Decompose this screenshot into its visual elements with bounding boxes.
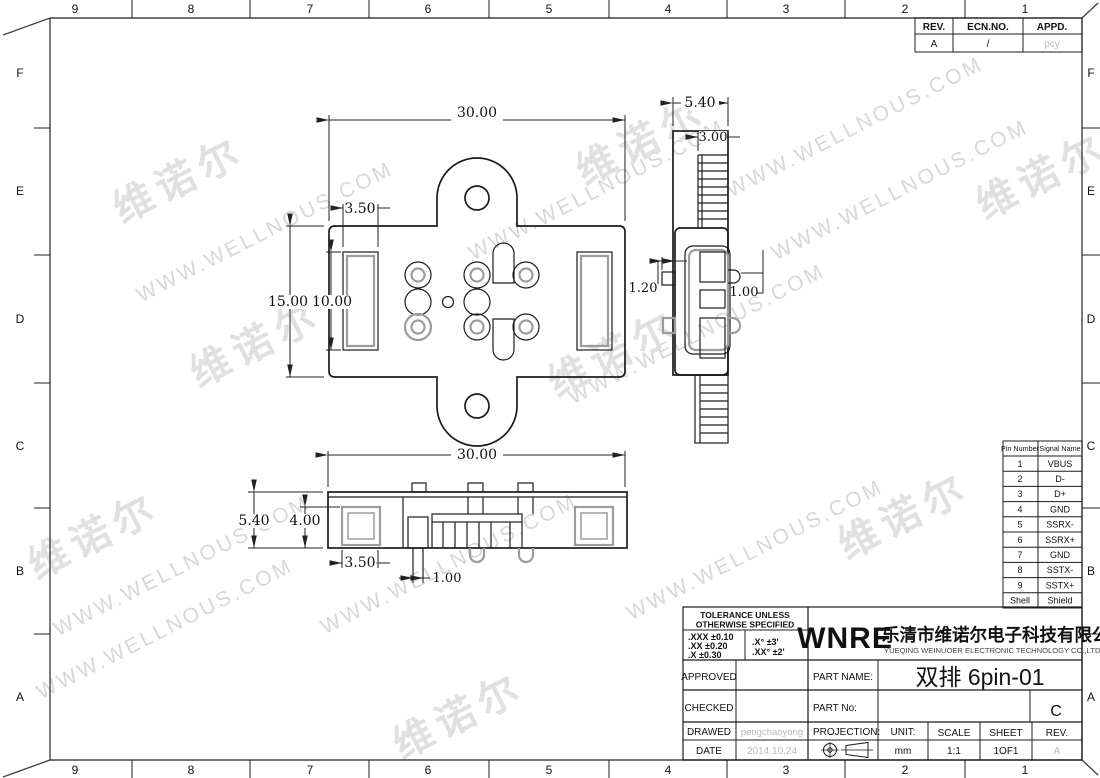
zone-row: F [16, 66, 23, 80]
zone-row: C [16, 439, 25, 453]
tolerance-title-1: TOLERANCE UNLESS [700, 610, 790, 620]
zone-col: 1 [1022, 763, 1029, 777]
zone-row: E [1087, 184, 1095, 198]
dim-front-width: 30.00 [457, 105, 497, 121]
zone-col: 9 [72, 2, 79, 16]
size-value: C [1050, 703, 1062, 720]
signal-name: SSRX- [1046, 520, 1074, 530]
sheet-label: SHEET [989, 728, 1022, 739]
unit-label: UNIT: [891, 727, 916, 738]
scale-label: SCALE [938, 728, 971, 739]
rev-header: REV. [923, 22, 946, 33]
rev-value: A [931, 39, 938, 50]
pin-number: 8 [1017, 565, 1022, 575]
zone-col: 3 [783, 2, 790, 16]
company-name-cn: 乐清市维诺尔电子科技有限公司 [882, 625, 1100, 645]
drawed-label: DRAWED [687, 727, 731, 738]
pin-number: 2 [1017, 474, 1022, 484]
zone-col: 6 [425, 2, 432, 16]
zone-col: 7 [307, 2, 314, 16]
zone-row: A [1087, 690, 1095, 704]
watermark-brand: 维诺尔 [386, 665, 532, 768]
unit-value: mm [895, 746, 912, 757]
pin-number: 3 [1017, 489, 1022, 499]
pin-number: 5 [1017, 520, 1022, 530]
zone-col: 9 [72, 763, 79, 777]
dim-bottom-height: 5.40 [238, 513, 269, 529]
pin-number: 4 [1017, 504, 1022, 514]
drawing-sheet: WWW.WELLNOUS.COM WWW.WELLNOUS.COM WWW.WE… [0, 0, 1100, 778]
signal-name: GND [1050, 550, 1071, 560]
signal-name: VBUS [1048, 459, 1073, 469]
drawed-by: pengchaoyong [741, 727, 803, 738]
watermark-url: WWW.WELLNOUS.COM [723, 52, 987, 202]
rev-value: A [1054, 746, 1061, 757]
ecn-value: / [987, 39, 990, 50]
pin-number: 9 [1017, 580, 1022, 590]
watermark-layer: WWW.WELLNOUS.COM WWW.WELLNOUS.COM WWW.WE… [21, 52, 1100, 768]
dim-bottom-pin: 1.00 [433, 571, 462, 586]
zone-row: F [1087, 66, 1094, 80]
zone-col: 8 [188, 763, 195, 777]
dim-bottom-slot: 3.50 [344, 555, 375, 571]
mount-hole-bottom [465, 394, 489, 418]
projection-symbol-icon [821, 742, 873, 758]
zone-col: 5 [546, 763, 553, 777]
title-block: TOLERANCE UNLESS OTHERWISE SPECIFIED .XX… [681, 607, 1100, 760]
zone-col: 8 [188, 2, 195, 16]
side-pin-ladder-top [698, 155, 728, 228]
part-no-label: PART No: [813, 703, 857, 714]
revision-table: REV. ECN.NO. APPD. A / pcy [915, 18, 1082, 52]
zone-row: C [1087, 439, 1096, 453]
scale-value: 1:1 [947, 746, 961, 757]
signal-name: D- [1055, 474, 1065, 484]
pin-number: 1 [1017, 459, 1022, 469]
checked-label: CHECKED [685, 703, 734, 714]
company-name-en: YUEQING WEINUOER ELECTRONIC TECHNOLOGY C… [884, 646, 1100, 655]
date-label: DATE [696, 746, 722, 757]
zone-col: 2 [902, 2, 909, 16]
pin-col-header: Pin Number [1001, 444, 1040, 453]
dim-bottom-inner: 4.00 [289, 513, 320, 529]
pin-table: Pin Number Signal Name 1 VBUS 2 D- 3 D+ … [1001, 441, 1082, 608]
dim-front-slot-h: 10.00 [312, 294, 352, 310]
projection-label: PROJECTION: [813, 727, 880, 738]
watermark-brand: 维诺尔 [831, 465, 977, 568]
pin-number: 7 [1017, 550, 1022, 560]
zone-col: 5 [546, 2, 553, 16]
zone-col: 7 [307, 763, 314, 777]
dim-front-height: 15.00 [268, 294, 308, 310]
part-name-value: 双排 6pin-01 [915, 664, 1044, 690]
part-name-label: PART NAME: [813, 672, 873, 683]
dim-side-width: 5.40 [684, 95, 715, 111]
signal-name: SSTX+ [1046, 580, 1075, 590]
zone-row: E [16, 184, 24, 198]
signal-col-header: Signal Name [1039, 444, 1080, 453]
mount-hole-top [465, 186, 489, 210]
tolerance-angle-2: .XX° ±2' [752, 647, 785, 657]
signal-name: SSTX- [1047, 565, 1074, 575]
zone-row: B [1087, 564, 1095, 578]
dim-bottom-width: 30.00 [457, 447, 497, 463]
zone-row: A [16, 690, 24, 704]
appd-value: pcy [1044, 39, 1060, 50]
dim-side-tab-right: 1.00 [730, 285, 759, 300]
dim-side-tab-left: 1.20 [629, 281, 658, 296]
pin-number: 6 [1017, 535, 1022, 545]
zone-row: D [1087, 312, 1096, 326]
appd-header: APPD. [1037, 22, 1068, 33]
sheet-value: 1OF1 [993, 746, 1018, 757]
zone-row: D [16, 312, 25, 326]
zone-col: 4 [665, 763, 672, 777]
rev-label: REV. [1046, 728, 1068, 739]
pin-number: Shell [1010, 596, 1030, 606]
zone-row: B [16, 564, 24, 578]
zone-col: 6 [425, 763, 432, 777]
tolerance-title-2: OTHERWISE SPECIFIED [696, 620, 795, 630]
tolerance-angle-1: .X° ±3' [752, 637, 779, 647]
signal-name: Shield [1047, 596, 1072, 606]
watermark-brand: 维诺尔 [106, 129, 252, 232]
signal-name: SSRX+ [1045, 535, 1075, 545]
ecn-header: ECN.NO. [967, 22, 1009, 33]
zone-col: 2 [902, 763, 909, 777]
approved-label: APPROVED [681, 672, 737, 683]
dim-front-slot-w: 3.50 [344, 201, 375, 217]
signal-name: D+ [1054, 489, 1066, 499]
company-logo: WNRE [797, 622, 893, 655]
dim-side-rib: 3.00 [699, 130, 728, 145]
signal-name: GND [1050, 504, 1071, 514]
zone-col: 1 [1022, 2, 1029, 16]
zone-col: 4 [665, 2, 672, 16]
date-value: 2014.10.24 [747, 746, 797, 757]
zone-col: 3 [783, 763, 790, 777]
side-pin-ladder-bottom [695, 375, 728, 443]
tolerance-x: .X ±0.30 [688, 650, 721, 660]
